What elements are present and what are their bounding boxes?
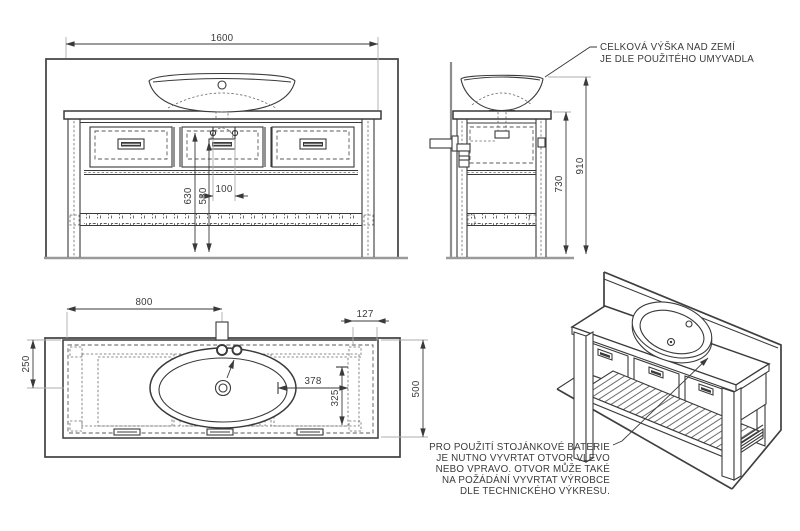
- plan-sink: [150, 348, 296, 428]
- faucet-hole-left: [217, 345, 227, 355]
- iso-view: PRO POUŽITÍ STOJÁNKOVÉ BATERIE JE NUTNO …: [429, 272, 781, 497]
- faucet-note-line2: JE NUTNO VYVRTAT OTVOR VLEVO: [436, 453, 610, 464]
- dim-910-label: 910: [575, 157, 586, 174]
- iso-overflow-hole: [686, 321, 692, 327]
- height-note-line1: CELKOVÁ VÝŠKA NAD ZEMÍ: [600, 42, 735, 53]
- side-plumbing: [430, 112, 509, 167]
- drain-trap: [457, 144, 470, 151]
- dim-800-label: 800: [136, 297, 153, 308]
- faucet-spout: [216, 322, 228, 340]
- faucet-note-line5: DLE TECHNICKÉHO VÝKRESU.: [460, 486, 610, 497]
- leader-line: [545, 47, 597, 77]
- faucet-note-line1: PRO POUŽITÍ STOJÁNKOVÉ BATERIE: [429, 442, 610, 453]
- side-dim-910: 910: [548, 77, 591, 254]
- dim-630-label: 630: [183, 187, 194, 204]
- dim-730-label: 730: [554, 175, 565, 192]
- height-note-line2: JE DLE POUŽITÉHO UMYVADLA: [600, 54, 754, 65]
- side-dim-730: 730: [553, 112, 571, 254]
- technical-drawing-page: 1600 630 580 100: [0, 0, 800, 531]
- side-height-note: CELKOVÁ VÝŠKA NAD ZEMÍ JE DLE POUŽITÉHO …: [545, 42, 754, 77]
- side-countertop: [453, 111, 551, 119]
- dim-325-label: 325: [330, 389, 341, 406]
- side-slatted-shelf: [467, 214, 536, 226]
- faucet-note-line3: NEBO VPRAVO. OTVOR MŮŽE TAKÉ: [436, 463, 611, 475]
- plan-dim-250: 250: [21, 340, 64, 388]
- side-sink: [461, 75, 543, 110]
- supply-pipe: [430, 139, 455, 148]
- vanity-technical-drawing: 1600 630 580 100: [0, 0, 800, 531]
- front-drawer-middle: [182, 127, 263, 167]
- dim-378-label: 378: [305, 376, 322, 387]
- front-view: 1600 630 580 100: [44, 33, 408, 258]
- front-drawer-left: [90, 127, 172, 167]
- faucet-note-line4: NA POŽÁDÁNÍ VYVRTAT VÝROBCE: [442, 475, 610, 486]
- front-sink-overflow-hole: [218, 81, 226, 89]
- front-drawer-right: [272, 127, 354, 167]
- side-view: 730 910 CELKOVÁ VÝŠKA NAD ZEMÍ JE DLE PO…: [430, 42, 754, 258]
- dim-100-label: 100: [216, 184, 233, 195]
- plan-dim-500: 500: [381, 340, 428, 437]
- faucet-hole-right: [233, 346, 242, 355]
- plan-dim-800: 800: [67, 297, 222, 338]
- side-rail: [467, 171, 536, 175]
- dim-127-label: 127: [357, 309, 374, 320]
- drain-fitting: [495, 131, 509, 138]
- dim-250-label: 250: [21, 355, 32, 372]
- side-bracket: [538, 138, 545, 147]
- front-rail: [84, 171, 358, 175]
- front-slatted-shelf: [70, 214, 373, 226]
- dim-500-label: 500: [411, 380, 422, 397]
- dim-1600-label: 1600: [211, 33, 234, 44]
- plan-view: 800 127 250 500 378: [21, 297, 428, 457]
- iso-leg-front-right: [722, 388, 741, 480]
